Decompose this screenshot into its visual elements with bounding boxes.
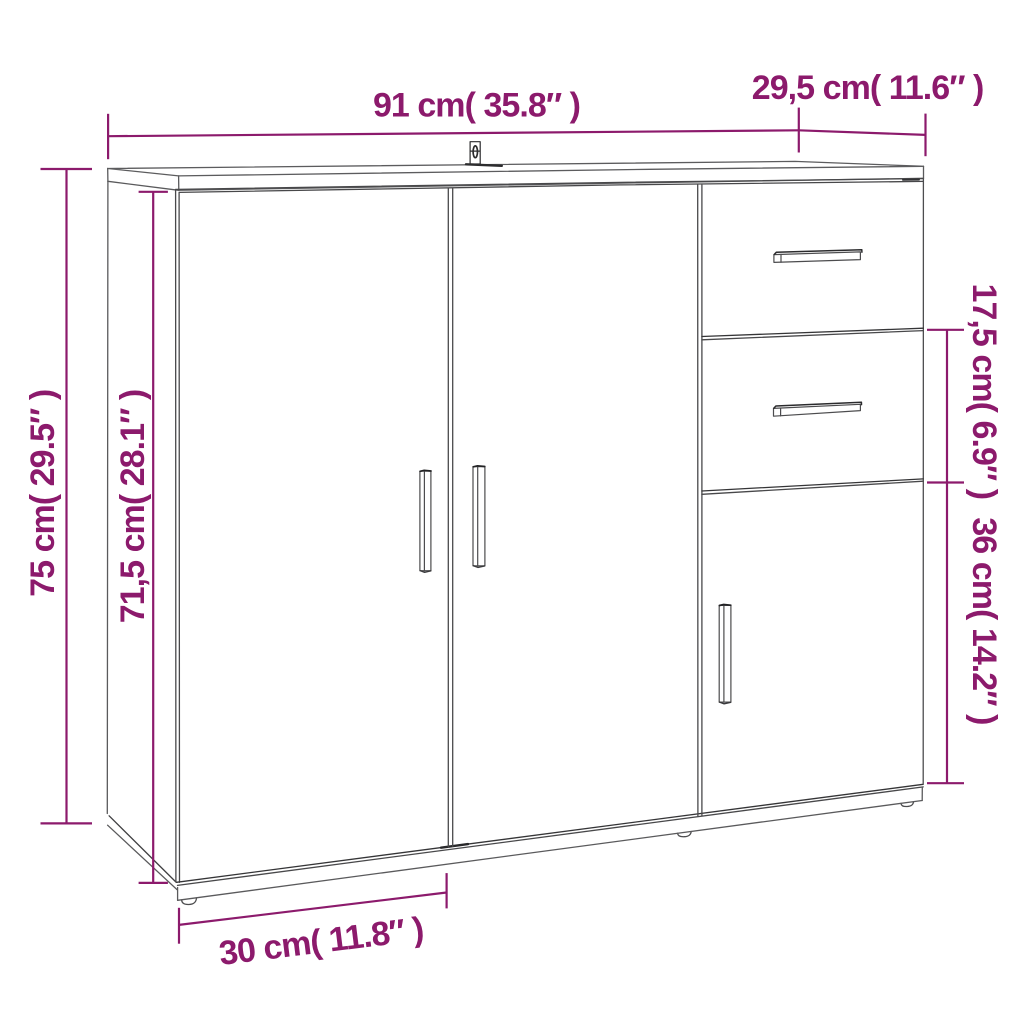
svg-text:75 cm( 29.5″ ): 75 cm( 29.5″ )	[24, 390, 62, 597]
svg-text:17,5 cm( 6.9″ ): 17,5 cm( 6.9″ )	[965, 283, 1003, 499]
svg-text:36 cm( 14.2″ ): 36 cm( 14.2″ )	[965, 517, 1003, 724]
svg-text:91 cm( 35.8″ ): 91 cm( 35.8″ )	[373, 87, 580, 125]
svg-text:29,5 cm( 11.6″ ): 29,5 cm( 11.6″ )	[752, 69, 984, 107]
svg-text:71,5 cm( 28.1″ ): 71,5 cm( 28.1″ )	[114, 390, 152, 624]
